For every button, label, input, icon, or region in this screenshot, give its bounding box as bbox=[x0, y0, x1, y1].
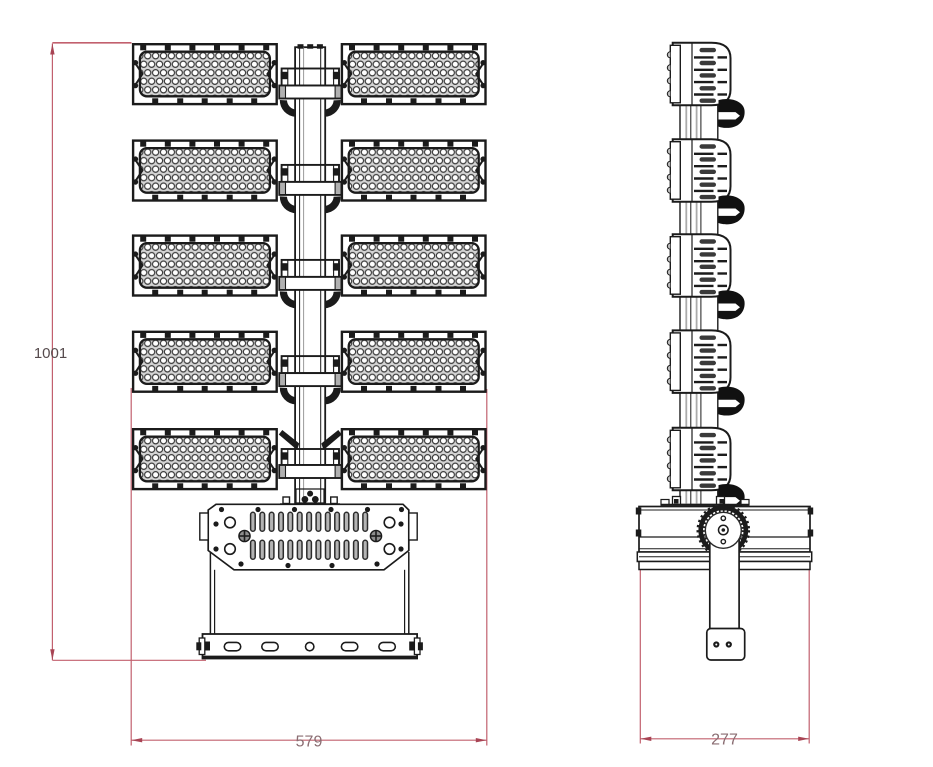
svg-text:277: 277 bbox=[711, 732, 738, 749]
svg-text:579: 579 bbox=[296, 734, 323, 751]
svg-text:1001: 1001 bbox=[34, 345, 67, 362]
